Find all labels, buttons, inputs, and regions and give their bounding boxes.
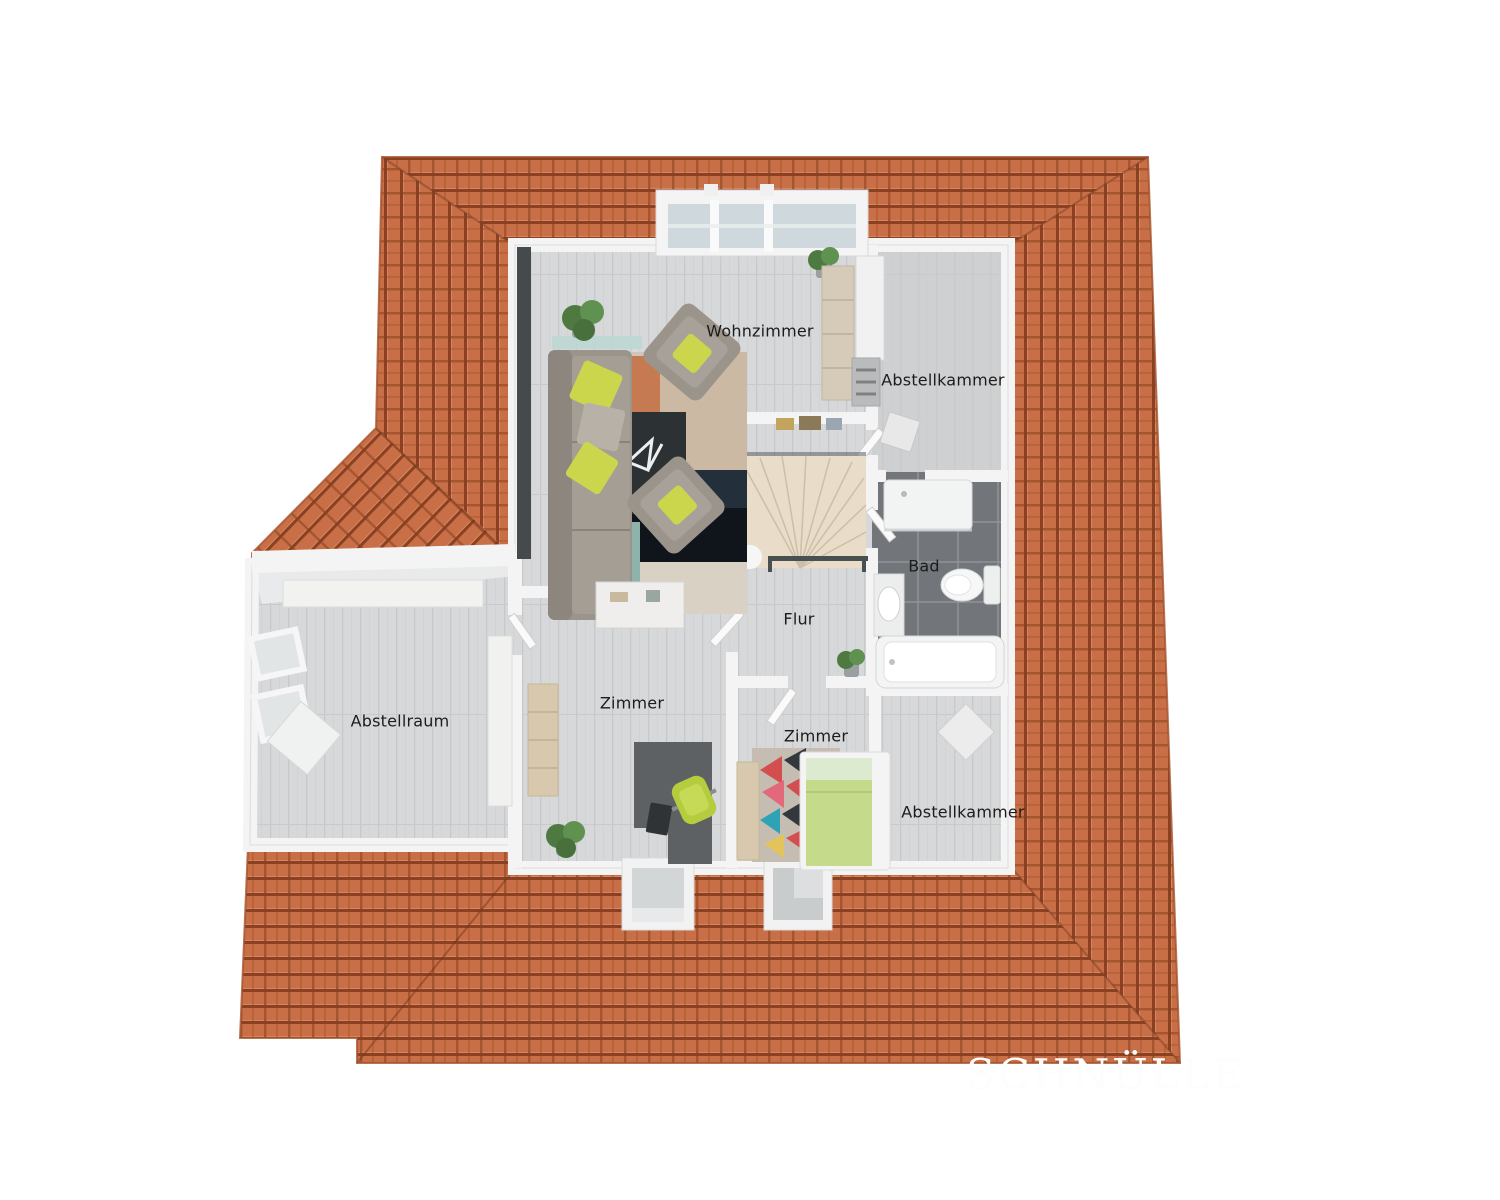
sideboard-right-wall — [822, 266, 854, 400]
room-label-zimmer-left: Zimmer — [600, 694, 664, 713]
glass-console — [552, 336, 642, 349]
drawer-chest — [852, 358, 880, 406]
sink — [874, 574, 904, 636]
furniture-zimmer-bottom — [737, 748, 890, 870]
cabinet — [488, 636, 512, 806]
chimney — [517, 247, 531, 559]
bottom-dormer-left — [622, 858, 694, 930]
bedside-cabinet — [737, 762, 759, 860]
room-label-abstellkammer-top: Abstellkammer — [881, 371, 1004, 390]
room-label-abstellkammer-bottom: Abstellkammer — [901, 803, 1024, 822]
top-dormer — [656, 184, 868, 256]
wall-pictures — [776, 416, 842, 430]
room-label-bad: Bad — [908, 557, 940, 576]
room-label-flur: Flur — [783, 610, 814, 629]
floor-plan-rendering — [0, 0, 1500, 1200]
floor-plan-scene: Wohnzimmer Abstellkammer Bad Flur Zimmer… — [0, 0, 1500, 1200]
room-label-zimmer-bottom: Zimmer — [784, 727, 848, 746]
dresser — [596, 582, 684, 628]
toilet — [941, 566, 1000, 604]
room-label-wohnzimmer: Wohnzimmer — [706, 322, 813, 341]
bathtub — [876, 636, 1004, 688]
watermark: SCHNÜLLE — [966, 1050, 1246, 1099]
headboard-cabinet — [528, 684, 558, 796]
tall-cabinet — [856, 256, 884, 360]
room-label-abstellraum: Abstellraum — [351, 712, 450, 731]
sofa — [548, 350, 632, 620]
bed — [800, 752, 890, 870]
floor-plan — [250, 184, 1008, 930]
sideboard — [283, 580, 483, 607]
shower — [884, 480, 972, 530]
